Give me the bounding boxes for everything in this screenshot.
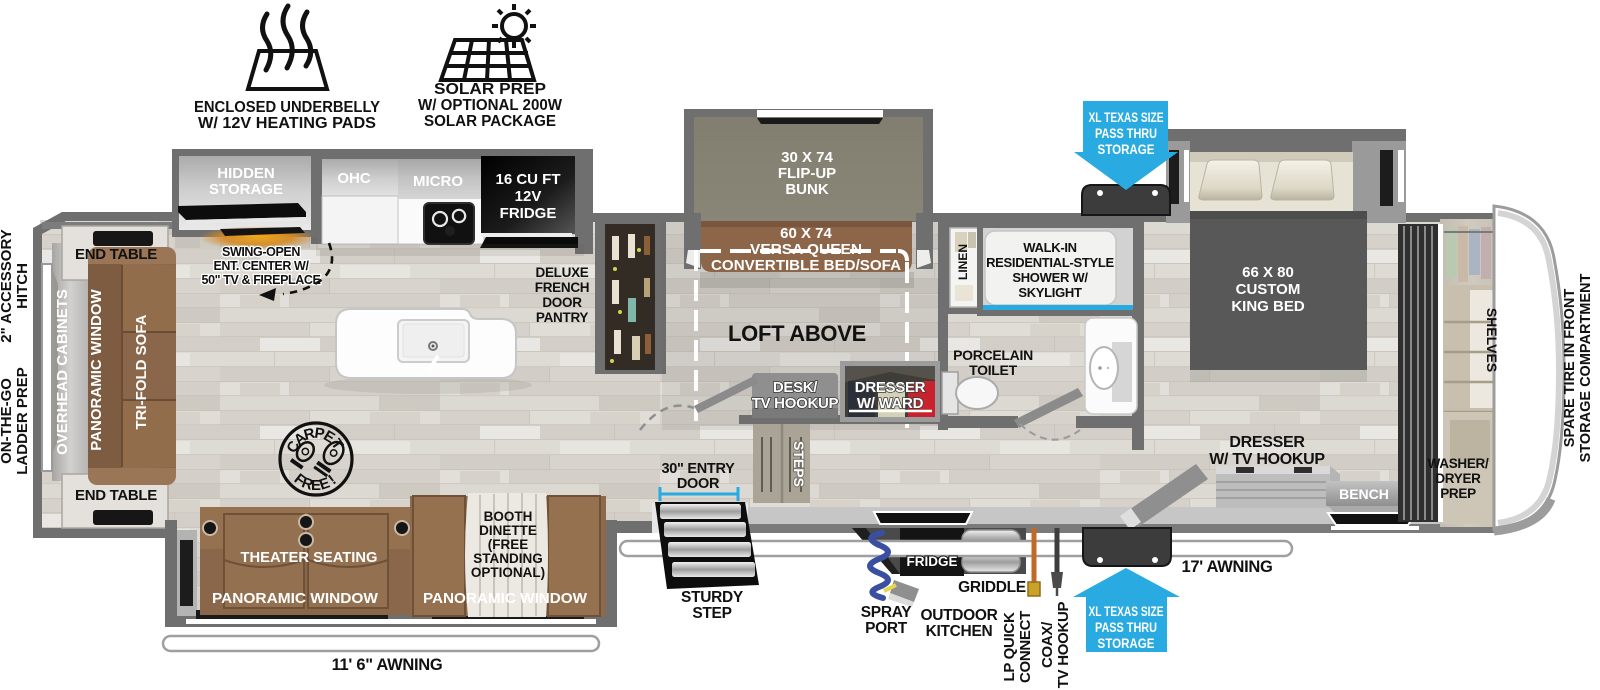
svg-text:(FREE: (FREE: [488, 537, 529, 552]
svg-text:FRENCH: FRENCH: [535, 280, 589, 295]
svg-text:30" ENTRY: 30" ENTRY: [662, 461, 736, 477]
svg-text:STEPS: STEPS: [791, 441, 807, 487]
svg-text:LADDER PREP: LADDER PREP: [14, 367, 31, 475]
svg-text:KITCHEN: KITCHEN: [926, 623, 993, 640]
svg-text:PASS THRU: PASS THRU: [1095, 126, 1157, 141]
svg-text:DOOR: DOOR: [677, 476, 720, 492]
svg-text:11' 6" AWNING: 11' 6" AWNING: [332, 656, 443, 674]
svg-text:COAX/: COAX/: [1039, 621, 1056, 668]
svg-text:DINETTE: DINETTE: [479, 523, 537, 538]
svg-text:PORT: PORT: [865, 620, 908, 637]
svg-text:FRIDGE: FRIDGE: [906, 554, 957, 569]
svg-text:RESIDENTIAL-STYLE: RESIDENTIAL-STYLE: [986, 255, 1114, 270]
svg-text:PANORAMIC WINDOW: PANORAMIC WINDOW: [88, 288, 105, 450]
svg-text:DESK/: DESK/: [773, 379, 818, 396]
svg-text:FRIDGE: FRIDGE: [500, 205, 557, 222]
svg-text:SPRAY: SPRAY: [861, 604, 912, 621]
svg-text:TRI-FOLD SOFA: TRI-FOLD SOFA: [133, 314, 150, 429]
svg-text:17' AWNING: 17' AWNING: [1181, 558, 1272, 576]
svg-text:CONNECT: CONNECT: [1017, 611, 1034, 683]
svg-text:MICRO: MICRO: [413, 173, 463, 190]
svg-text:W/ WARD: W/ WARD: [857, 395, 924, 412]
svg-text:OVERHEAD CABINETS: OVERHEAD CABINETS: [54, 289, 71, 455]
svg-text:SHELVES: SHELVES: [1484, 308, 1500, 372]
svg-text:SWING-OPEN: SWING-OPEN: [222, 245, 300, 259]
svg-text:OPTIONAL): OPTIONAL): [471, 565, 545, 580]
svg-text:SHOWER W/: SHOWER W/: [1012, 270, 1088, 285]
svg-text:W/ TV HOOKUP: W/ TV HOOKUP: [1209, 451, 1325, 468]
svg-text:PREP: PREP: [1440, 486, 1476, 501]
svg-text:STEP: STEP: [692, 605, 731, 622]
svg-text:DRESSER: DRESSER: [855, 379, 926, 396]
svg-text:ON-THE-GO: ON-THE-GO: [0, 378, 15, 464]
svg-text:CONVERTIBLE BED/SOFA: CONVERTIBLE BED/SOFA: [711, 257, 901, 274]
svg-text:W/ 12V HEATING PADS: W/ 12V HEATING PADS: [198, 115, 376, 132]
svg-text:END TABLE: END TABLE: [75, 246, 157, 263]
svg-text:W/ OPTIONAL 200W: W/ OPTIONAL 200W: [418, 97, 563, 114]
svg-text:WASHER/: WASHER/: [1428, 456, 1489, 471]
svg-text:PANTRY: PANTRY: [536, 310, 588, 325]
svg-text:TV HOOKUP: TV HOOKUP: [1055, 601, 1072, 688]
svg-text:SOLAR PREP: SOLAR PREP: [434, 81, 546, 98]
svg-text:SOLAR PACKAGE: SOLAR PACKAGE: [424, 113, 556, 130]
svg-text:BOOTH: BOOTH: [484, 509, 533, 524]
svg-text:LP QUICK: LP QUICK: [1001, 612, 1018, 681]
svg-text:PASS THRU: PASS THRU: [1095, 620, 1157, 635]
svg-text:50" TV & FIREPLACE: 50" TV & FIREPLACE: [202, 273, 321, 287]
svg-text:STORAGE: STORAGE: [1098, 142, 1155, 157]
svg-text:END TABLE: END TABLE: [75, 487, 157, 504]
svg-text:STORAGE COMPARTMENT: STORAGE COMPARTMENT: [1578, 273, 1594, 462]
svg-text:OHC: OHC: [337, 170, 371, 187]
svg-text:30 X 74: 30 X 74: [781, 149, 833, 166]
svg-text:FLIP-UP: FLIP-UP: [778, 165, 836, 182]
svg-text:HITCH: HITCH: [14, 263, 31, 309]
svg-text:BENCH: BENCH: [1339, 486, 1389, 502]
svg-text:60 X 74: 60 X 74: [780, 225, 832, 242]
svg-text:PORCELAIN: PORCELAIN: [953, 347, 1033, 363]
svg-text:PANORAMIC WINDOW: PANORAMIC WINDOW: [212, 590, 379, 607]
svg-text:BUNK: BUNK: [785, 181, 828, 198]
svg-text:XL TEXAS SIZE: XL TEXAS SIZE: [1089, 604, 1164, 619]
svg-text:DRYER: DRYER: [1435, 471, 1481, 486]
svg-text:HIDDEN: HIDDEN: [217, 165, 275, 182]
svg-text:STURDY: STURDY: [681, 589, 744, 606]
svg-text:DOOR: DOOR: [542, 295, 582, 310]
svg-text:OUTDOOR: OUTDOOR: [920, 607, 997, 624]
svg-text:WALK-IN: WALK-IN: [1023, 240, 1077, 255]
svg-text:CUSTOM: CUSTOM: [1236, 281, 1301, 298]
svg-text:DELUXE: DELUXE: [536, 265, 589, 280]
svg-text:STORAGE: STORAGE: [1098, 636, 1155, 651]
svg-text:PANORAMIC WINDOW: PANORAMIC WINDOW: [423, 590, 588, 607]
svg-text:LINEN: LINEN: [956, 244, 970, 280]
svg-text:VERSA QUEEN: VERSA QUEEN: [750, 241, 862, 258]
svg-text:SKYLIGHT: SKYLIGHT: [1018, 285, 1082, 300]
svg-text:ENT. CENTER W/: ENT. CENTER W/: [213, 259, 309, 273]
svg-text:12V: 12V: [515, 188, 542, 205]
svg-text:STORAGE: STORAGE: [209, 181, 283, 198]
svg-text:ENCLOSED UNDERBELLY: ENCLOSED UNDERBELLY: [194, 99, 380, 116]
svg-text:SPARE TIRE IN FRONT: SPARE TIRE IN FRONT: [1562, 289, 1578, 448]
svg-text:THEATER SEATING: THEATER SEATING: [241, 549, 378, 566]
svg-text:LOFT ABOVE: LOFT ABOVE: [728, 321, 866, 346]
svg-text:TV HOOKUP: TV HOOKUP: [752, 395, 839, 412]
svg-text:GRIDDLE: GRIDDLE: [958, 579, 1026, 596]
svg-text:TOILET: TOILET: [969, 362, 1017, 378]
svg-text:DRESSER: DRESSER: [1229, 434, 1305, 451]
svg-text:XL TEXAS SIZE: XL TEXAS SIZE: [1089, 110, 1164, 125]
svg-text:2" ACCESSORY: 2" ACCESSORY: [0, 229, 15, 343]
svg-text:KING BED: KING BED: [1231, 298, 1305, 315]
svg-text:66 X 80: 66 X 80: [1242, 264, 1294, 281]
svg-text:STANDING: STANDING: [473, 551, 543, 566]
svg-text:16 CU FT: 16 CU FT: [495, 171, 560, 188]
